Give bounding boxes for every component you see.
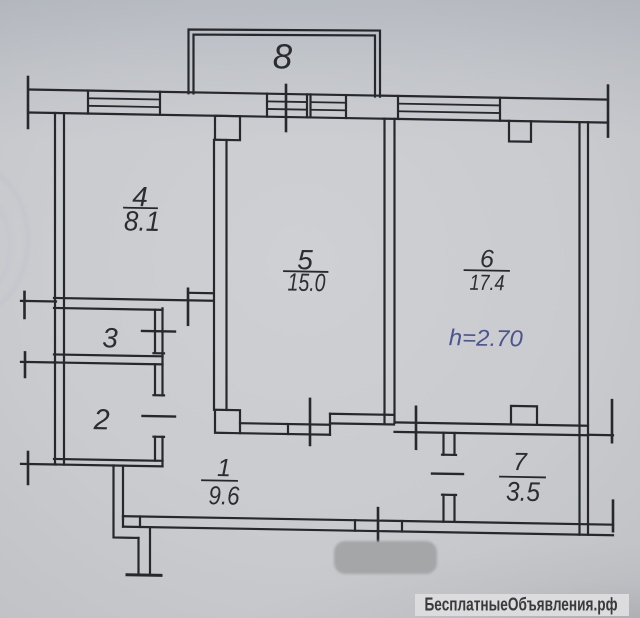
svg-text:3.5: 3.5 <box>506 477 541 508</box>
svg-text:БесплатныеОбъявления.рф: БесплатныеОбъявления.рф <box>425 594 618 615</box>
svg-text:1: 1 <box>217 454 231 482</box>
svg-text:h=2.70: h=2.70 <box>449 324 523 351</box>
svg-text:7: 7 <box>513 448 528 476</box>
svg-text:9.6: 9.6 <box>208 480 239 511</box>
svg-text:8: 8 <box>273 37 293 76</box>
svg-text:8.1: 8.1 <box>124 205 160 237</box>
svg-text:17.4: 17.4 <box>470 270 505 296</box>
svg-text:2: 2 <box>93 404 110 436</box>
svg-text:15.0: 15.0 <box>288 269 326 298</box>
svg-text:3: 3 <box>102 322 118 353</box>
